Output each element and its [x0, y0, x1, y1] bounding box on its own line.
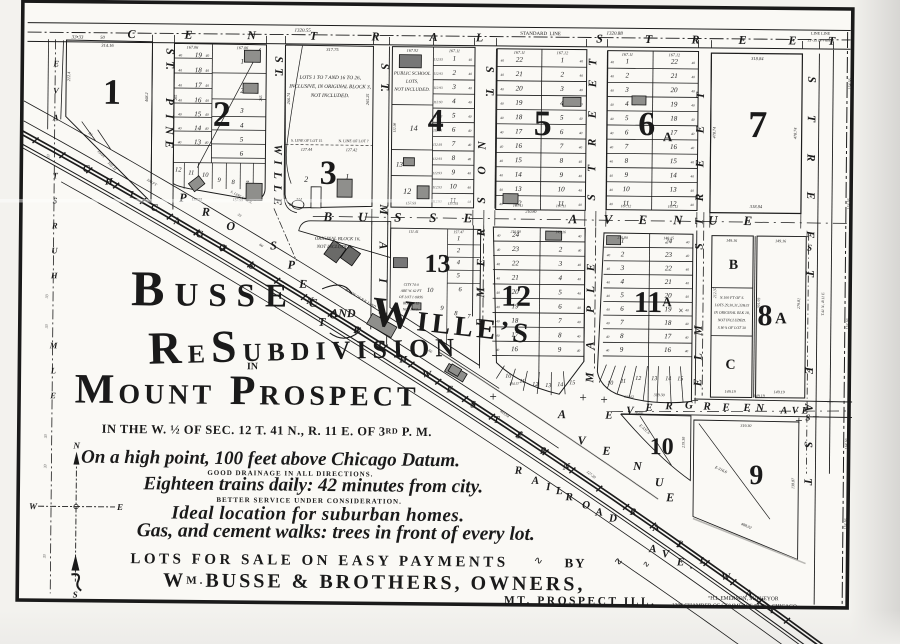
svg-text:40: 40: [610, 131, 614, 135]
svg-text:33: 33: [43, 554, 47, 558]
svg-text:S: S: [163, 48, 175, 55]
svg-text:LINE LINE: LINE LINE: [811, 31, 831, 36]
svg-text:40: 40: [609, 202, 613, 206]
svg-text:E: E: [49, 390, 56, 400]
svg-text:167.12: 167.12: [621, 204, 632, 208]
svg-text:40: 40: [178, 84, 182, 88]
svg-text:C: C: [725, 358, 735, 373]
svg-text:14: 14: [557, 381, 563, 388]
svg-text:40: 40: [691, 104, 695, 108]
svg-text:40: 40: [468, 100, 472, 104]
svg-text:40: 40: [577, 349, 581, 353]
svg-text:40: 40: [686, 268, 690, 272]
svg-text:40: 40: [496, 305, 500, 309]
svg-text:40: 40: [607, 280, 611, 284]
svg-text:10: 10: [427, 287, 434, 294]
svg-text:N: N: [755, 402, 765, 414]
svg-text:40: 40: [685, 322, 689, 326]
svg-text:40: 40: [178, 127, 182, 131]
svg-text:R: R: [664, 400, 672, 412]
svg-text:E: E: [742, 213, 752, 228]
svg-text:O: O: [226, 219, 235, 233]
svg-text:40: 40: [579, 74, 583, 78]
svg-text:22: 22: [665, 264, 673, 272]
svg-text:E: E: [587, 79, 599, 88]
svg-text:L: L: [271, 184, 283, 192]
svg-text:154.56: 154.56: [844, 438, 849, 449]
svg-text:40: 40: [178, 113, 182, 117]
svg-text:265: 265: [259, 95, 263, 101]
svg-text:INCLUSIVE, IN ORIGINAL BLOCK 3: INCLUSIVE, IN ORIGINAL BLOCK 3,: [288, 84, 371, 91]
svg-text:“H.L.EMERSON, SURVEYOR: “H.L.EMERSON, SURVEYOR: [708, 595, 779, 603]
svg-text:6: 6: [638, 106, 655, 143]
svg-text:7: 7: [558, 317, 562, 325]
svg-text:40: 40: [497, 248, 501, 252]
svg-text:40: 40: [606, 335, 610, 339]
svg-text:40: 40: [500, 102, 504, 106]
svg-text:B: B: [729, 258, 738, 273]
svg-text:18: 18: [664, 319, 672, 327]
svg-text:40: 40: [610, 74, 614, 78]
svg-text:S: S: [476, 197, 488, 204]
svg-text:NOT INCLUDED.: NOT INCLUDED.: [310, 93, 350, 99]
svg-text:2: 2: [213, 94, 231, 134]
svg-text:8: 8: [558, 331, 562, 339]
svg-text:19: 19: [515, 99, 523, 107]
svg-text:A: A: [567, 211, 577, 226]
svg-text:E: E: [445, 384, 453, 395]
svg-text:40: 40: [610, 117, 614, 121]
svg-text:40: 40: [205, 141, 209, 145]
svg-text:N.100 FT OF S.: N.100 FT OF S.: [719, 296, 744, 300]
svg-text:WM.BUSSE & BROTHERS, OWNERS,: WM.BUSSE & BROTHERS, OWNERS,: [163, 569, 585, 595]
svg-text:1: 1: [457, 235, 460, 242]
svg-text:14: 14: [515, 171, 523, 179]
svg-text:N: N: [672, 212, 683, 227]
svg-text:40: 40: [469, 58, 473, 62]
svg-text:13: 13: [396, 161, 404, 169]
svg-text:N: N: [632, 459, 643, 473]
svg-text:17: 17: [515, 128, 523, 136]
svg-text:U: U: [51, 245, 58, 255]
svg-text:W: W: [721, 572, 731, 583]
svg-text:12: 12: [403, 187, 411, 196]
svg-text:3: 3: [320, 155, 337, 192]
svg-text:E: E: [665, 490, 674, 504]
svg-text:127.42: 127.42: [346, 147, 358, 152]
svg-text:219.30: 219.30: [681, 437, 686, 448]
svg-text:S: S: [805, 76, 817, 83]
svg-text:112.98: 112.98: [393, 123, 397, 133]
svg-text:10: 10: [650, 434, 674, 460]
svg-text:A: A: [648, 543, 656, 555]
svg-text:318.84: 318.84: [751, 56, 764, 61]
svg-text:E: E: [802, 366, 814, 375]
svg-text:40: 40: [606, 308, 610, 312]
svg-text:N: N: [476, 141, 488, 151]
svg-text:L: L: [475, 30, 483, 44]
svg-text:S: S: [483, 66, 495, 73]
svg-text:12: 12: [175, 166, 182, 173]
svg-text:20: 20: [516, 84, 524, 92]
svg-text:E: E: [184, 28, 193, 42]
svg-text:∿: ∿: [613, 556, 623, 568]
svg-text:N: N: [246, 28, 257, 42]
svg-text:266.74: 266.74: [286, 93, 291, 105]
svg-text:40: 40: [469, 72, 473, 76]
svg-text:40: 40: [610, 174, 614, 178]
svg-text:A: A: [557, 407, 566, 421]
svg-text:4: 4: [558, 274, 562, 282]
svg-text:4: 4: [620, 278, 624, 286]
svg-text:40: 40: [178, 99, 182, 103]
svg-text:40: 40: [500, 145, 504, 149]
svg-text:C: C: [309, 296, 318, 310]
svg-text:N: N: [163, 125, 175, 135]
svg-text:6: 6: [240, 150, 244, 158]
svg-text:1320.88: 1320.88: [606, 32, 623, 37]
svg-text:96.66: 96.66: [635, 411, 644, 415]
svg-text:8: 8: [560, 157, 564, 165]
svg-text:2: 2: [452, 69, 456, 77]
svg-text:S: S: [378, 63, 390, 70]
svg-text:40: 40: [206, 54, 210, 58]
svg-text:40: 40: [579, 117, 583, 121]
svg-text:C: C: [151, 203, 158, 214]
svg-text:40: 40: [611, 60, 615, 64]
svg-text:A: A: [428, 30, 437, 44]
svg-text:L: L: [271, 171, 283, 179]
svg-text:7: 7: [625, 143, 629, 151]
svg-text:T.: T.: [163, 61, 175, 70]
svg-text:R: R: [201, 205, 210, 219]
svg-text:40: 40: [691, 75, 695, 79]
svg-text:8: 8: [452, 154, 456, 162]
svg-text:A: A: [594, 507, 602, 519]
svg-text:13: 13: [545, 383, 551, 389]
svg-text:33: 33: [45, 324, 49, 328]
svg-text:40: 40: [178, 69, 182, 73]
svg-text:10: 10: [450, 182, 458, 190]
svg-text:104.62: 104.62: [624, 395, 634, 399]
svg-text:H: H: [104, 177, 114, 188]
svg-text:T: T: [645, 32, 653, 46]
svg-text:13: 13: [424, 249, 450, 278]
svg-text:R: R: [539, 446, 547, 457]
svg-text:∿: ∿: [533, 555, 543, 567]
svg-text:40: 40: [500, 130, 504, 134]
svg-text:154.56: 154.56: [845, 318, 850, 329]
svg-text:40: 40: [468, 115, 472, 119]
svg-text:22: 22: [516, 56, 524, 64]
svg-text:15: 15: [677, 376, 683, 382]
svg-text:319.30: 319.30: [654, 392, 665, 397]
svg-text:33: 33: [44, 434, 48, 438]
svg-text:40: 40: [497, 276, 501, 280]
svg-text:CITY 74-0: CITY 74-0: [404, 283, 419, 287]
svg-text:40: 40: [500, 173, 504, 177]
svg-text:A: A: [531, 475, 539, 487]
svg-text:I: I: [545, 481, 551, 493]
svg-text:R: R: [804, 153, 816, 162]
svg-text:112.93: 112.93: [433, 143, 442, 147]
svg-text:6: 6: [560, 128, 564, 136]
svg-text:40: 40: [496, 291, 500, 295]
svg-text:16: 16: [515, 142, 523, 150]
svg-text:A: A: [775, 310, 787, 327]
svg-text:E: E: [52, 58, 59, 68]
svg-text:167.92: 167.92: [407, 48, 419, 53]
svg-text:10: 10: [505, 374, 511, 380]
svg-text:E: E: [298, 277, 307, 291]
svg-text:9: 9: [558, 346, 562, 354]
svg-text:318.84: 318.84: [750, 204, 763, 209]
svg-text:1: 1: [103, 72, 121, 112]
svg-text:E: E: [721, 402, 729, 414]
svg-text:167.11: 167.11: [513, 204, 523, 208]
svg-text:40: 40: [179, 54, 183, 58]
svg-text:40: 40: [691, 118, 695, 122]
svg-text:40: 40: [610, 160, 614, 164]
svg-text:22: 22: [671, 58, 679, 66]
svg-text:3: 3: [624, 86, 629, 94]
svg-text:112.93: 112.93: [434, 57, 443, 61]
svg-text:40: 40: [609, 188, 613, 192]
svg-text:40: 40: [497, 234, 501, 238]
svg-text:2: 2: [559, 245, 563, 253]
svg-text:40: 40: [178, 141, 182, 145]
svg-text:I: I: [376, 277, 388, 283]
svg-text:T.: T.: [272, 68, 284, 77]
svg-text:14: 14: [194, 124, 202, 132]
svg-text:9: 9: [451, 168, 455, 176]
svg-text:NOT INCLUDED.: NOT INCLUDED.: [316, 245, 353, 250]
svg-text:6: 6: [620, 305, 624, 313]
svg-text:11: 11: [634, 286, 663, 319]
svg-text:40: 40: [499, 202, 503, 206]
svg-text:149.15: 149.15: [663, 236, 674, 240]
svg-text:112.93: 112.93: [434, 86, 443, 90]
svg-text:W: W: [271, 144, 283, 155]
svg-text:I: I: [163, 113, 175, 119]
svg-text:17: 17: [195, 81, 203, 89]
svg-text:G: G: [196, 229, 204, 240]
svg-text:40: 40: [610, 145, 614, 149]
svg-text:R: R: [629, 507, 637, 518]
svg-text:40: 40: [691, 175, 695, 179]
svg-text:S. LINE OF LOT 15: S. LINE OF LOT 15: [291, 139, 323, 143]
svg-text:14: 14: [665, 375, 671, 382]
svg-text:T: T: [586, 164, 598, 172]
svg-text:E: E: [694, 159, 706, 168]
svg-text:210.80: 210.80: [525, 209, 536, 214]
svg-text:1206 CHAMBER OF COMMERCE BLDG.: 1206 CHAMBER OF COMMERCE BLDG. CHICAGO.: [672, 603, 799, 610]
svg-text:U: U: [655, 475, 665, 489]
svg-text:E: E: [737, 33, 746, 47]
svg-text:A: A: [652, 523, 660, 534]
svg-text:21: 21: [671, 72, 678, 80]
svg-text:40: 40: [690, 189, 694, 193]
svg-text:210.80: 210.80: [617, 236, 628, 240]
svg-text:40: 40: [579, 88, 583, 92]
svg-text:E: E: [801, 406, 809, 417]
svg-text:112.93: 112.93: [433, 171, 442, 175]
svg-text:11: 11: [188, 170, 194, 177]
svg-text:10: 10: [607, 381, 613, 387]
svg-text:Eighteen trains daily: 42 minu: Eighteen trains daily: 42 minutes from c…: [142, 473, 483, 497]
svg-text:279.81: 279.81: [796, 298, 801, 309]
svg-text:478.74: 478.74: [712, 127, 717, 139]
svg-text:10: 10: [623, 185, 631, 193]
svg-text:S.W.¼ OF LOT 30: S.W.¼ OF LOT 30: [718, 326, 746, 330]
svg-text:40: 40: [610, 103, 614, 107]
svg-text:1: 1: [241, 58, 245, 66]
svg-text:40: 40: [205, 84, 209, 88]
svg-text:3: 3: [558, 260, 563, 268]
svg-text:E: E: [644, 402, 652, 414]
svg-text:154.56: 154.56: [846, 198, 851, 209]
svg-text:8: 8: [625, 157, 629, 165]
svg-text:R: R: [371, 29, 380, 43]
svg-text:S: S: [394, 210, 401, 225]
svg-text:S: S: [807, 243, 812, 253]
svg-text:U: U: [358, 209, 368, 224]
svg-text:40: 40: [500, 159, 504, 163]
svg-text:210.80: 210.80: [510, 230, 521, 234]
svg-text:3: 3: [559, 85, 564, 93]
svg-text:9: 9: [559, 171, 563, 179]
svg-text:22: 22: [512, 259, 520, 267]
svg-text:18: 18: [670, 115, 678, 123]
svg-text:T.: T.: [378, 83, 390, 92]
svg-text:167.06: 167.06: [237, 45, 249, 50]
svg-text:167.11: 167.11: [514, 50, 525, 55]
svg-text:138.87: 138.87: [790, 477, 795, 489]
svg-text:11: 11: [620, 379, 626, 385]
svg-text:H: H: [50, 270, 58, 280]
svg-text:127.44: 127.44: [301, 147, 313, 152]
svg-text:E: E: [804, 191, 816, 200]
svg-text:T: T: [805, 115, 817, 123]
svg-text:149.16: 149.16: [726, 238, 737, 243]
svg-text:E: E: [462, 210, 472, 225]
svg-text:40: 40: [686, 254, 690, 258]
svg-text:×: ×: [678, 305, 683, 315]
svg-text:40: 40: [610, 89, 614, 93]
svg-text:40: 40: [500, 87, 504, 91]
svg-text:S: S: [596, 32, 603, 46]
svg-text:15: 15: [569, 380, 575, 386]
svg-text:S: S: [802, 441, 814, 448]
svg-text:R: R: [514, 465, 522, 477]
svg-text:R: R: [587, 138, 599, 147]
svg-text:40: 40: [501, 59, 505, 63]
svg-text:16: 16: [664, 346, 672, 354]
svg-text:40: 40: [690, 203, 694, 207]
svg-text:N: N: [72, 441, 80, 451]
svg-text:6: 6: [452, 126, 456, 134]
svg-text:33: 33: [43, 464, 47, 468]
svg-text:40: 40: [686, 240, 690, 244]
svg-text:21: 21: [665, 278, 672, 286]
svg-text:3: 3: [620, 264, 625, 272]
svg-text:157.47: 157.47: [453, 230, 465, 234]
svg-text:9: 9: [620, 346, 624, 354]
svg-text:5: 5: [452, 111, 456, 119]
svg-text:15: 15: [670, 157, 678, 165]
svg-text:149.19: 149.19: [774, 389, 785, 394]
svg-text:E: E: [742, 402, 750, 414]
svg-text:A: A: [173, 216, 181, 227]
svg-text:E: E: [695, 125, 707, 134]
svg-text:40: 40: [497, 262, 501, 266]
svg-text:T: T: [695, 91, 707, 99]
svg-text:40: 40: [467, 186, 471, 190]
svg-text:40: 40: [577, 320, 581, 324]
svg-text:13: 13: [194, 138, 202, 146]
svg-text:19: 19: [670, 100, 678, 108]
svg-text:23: 23: [665, 251, 673, 259]
svg-text:S: S: [470, 400, 476, 411]
svg-text:N. LINE OF LOT 7: N. LINE OF LOT 7: [338, 139, 368, 143]
svg-text:E: E: [676, 556, 684, 568]
svg-text:40: 40: [577, 306, 581, 310]
svg-text:W: W: [422, 369, 432, 380]
svg-text:I: I: [271, 159, 283, 165]
svg-text:S: S: [73, 590, 78, 600]
svg-text:&: &: [249, 261, 256, 271]
svg-text:T: T: [803, 270, 815, 278]
svg-text:314.16: 314.16: [101, 43, 114, 48]
svg-text:E: E: [587, 110, 599, 119]
svg-text:40: 40: [578, 249, 582, 253]
svg-text:L: L: [555, 485, 563, 497]
svg-text:9: 9: [749, 460, 763, 491]
svg-text:E: E: [162, 140, 174, 149]
svg-text:40: 40: [496, 348, 500, 352]
svg-text:E: E: [787, 33, 796, 47]
svg-text:M: M: [475, 287, 487, 299]
svg-text:17: 17: [664, 332, 672, 340]
svg-text:AND: AND: [329, 306, 356, 320]
svg-text:212.37: 212.37: [712, 286, 717, 298]
svg-text:M: M: [584, 372, 596, 384]
svg-text:40: 40: [685, 308, 689, 312]
svg-text:T: T: [493, 415, 500, 426]
svg-text:10: 10: [558, 185, 566, 193]
svg-text:167.11: 167.11: [556, 204, 566, 208]
svg-text:G: G: [685, 399, 693, 411]
svg-text:On a high point, 100 feet abov: On a high point, 100 feet above Chicago …: [81, 447, 460, 472]
svg-text:23: 23: [512, 245, 520, 253]
svg-text:149.19: 149.19: [725, 389, 736, 394]
svg-text:M: M: [377, 203, 389, 215]
svg-text:40: 40: [499, 188, 503, 192]
svg-text:T: T: [310, 29, 318, 43]
svg-text:40: 40: [205, 127, 209, 131]
svg-text:N: N: [562, 462, 571, 473]
svg-text:T: T: [53, 170, 59, 180]
svg-text:12: 12: [532, 382, 538, 388]
svg-text:40: 40: [205, 113, 209, 117]
svg-text:14: 14: [410, 124, 418, 133]
svg-text:2: 2: [625, 72, 629, 80]
svg-text:149.16: 149.16: [775, 238, 786, 243]
svg-text:4: 4: [428, 102, 444, 138]
svg-text:19: 19: [195, 51, 203, 59]
svg-text:40: 40: [500, 73, 504, 77]
svg-text:M: M: [49, 340, 58, 350]
